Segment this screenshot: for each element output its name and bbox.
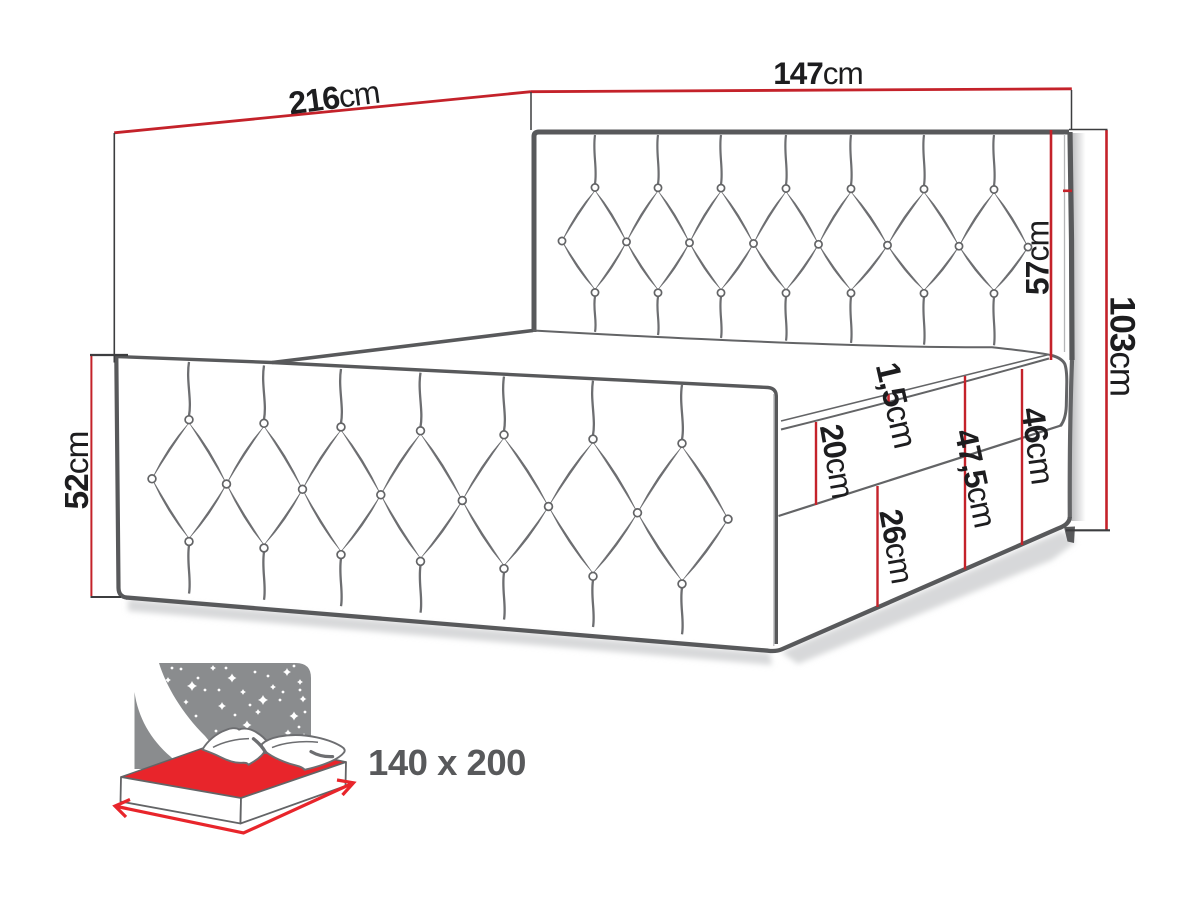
svg-text:147cm: 147cm [773, 55, 863, 91]
svg-text:57cm: 57cm [1020, 221, 1056, 295]
svg-text:140 x 200: 140 x 200 [368, 742, 526, 783]
svg-text:103cm: 103cm [1103, 296, 1142, 396]
svg-text:52cm: 52cm [59, 432, 96, 510]
